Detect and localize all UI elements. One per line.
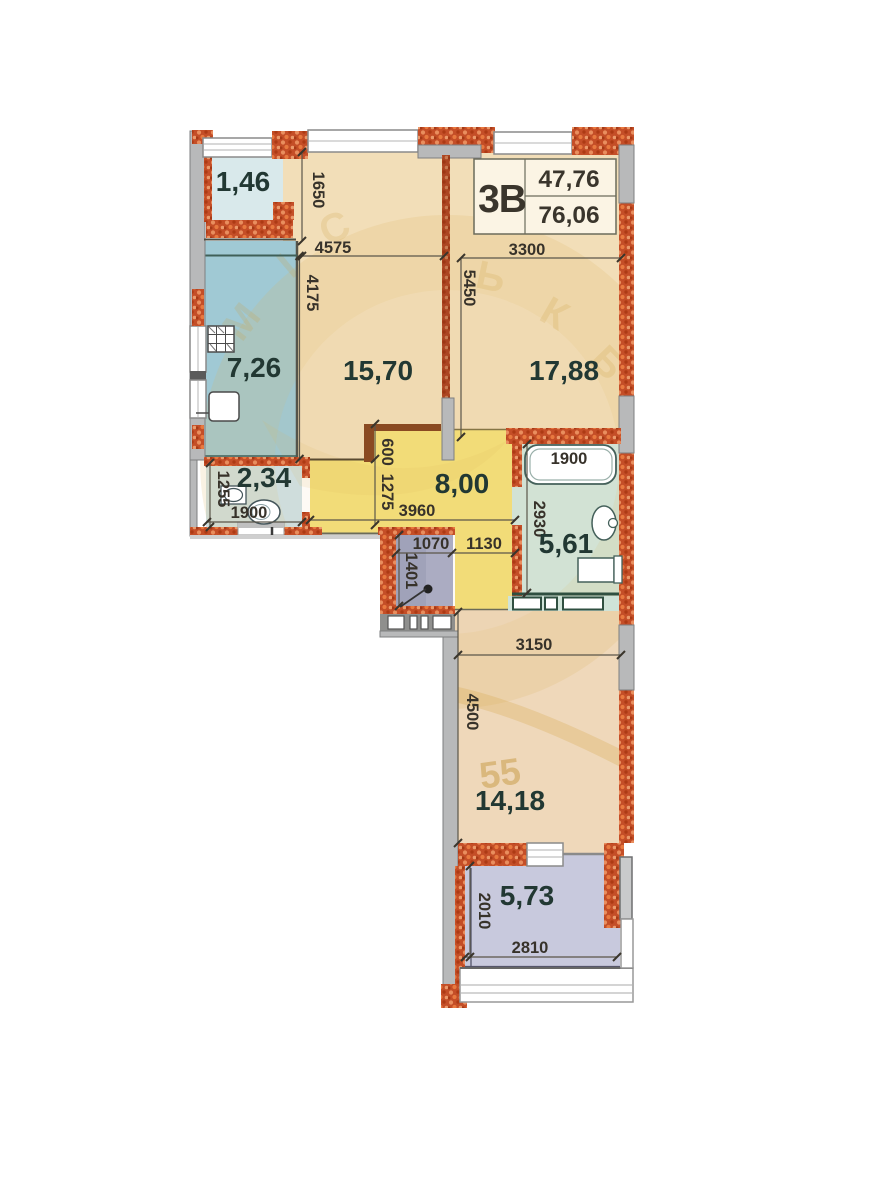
svg-text:3300: 3300 [509,241,546,259]
svg-text:2010: 2010 [475,893,493,930]
svg-text:1255: 1255 [214,471,232,508]
svg-text:7,26: 7,26 [227,352,282,383]
svg-text:3В: 3В [478,178,526,221]
svg-text:2,34: 2,34 [237,462,292,493]
svg-text:2810: 2810 [512,939,549,957]
svg-text:5450: 5450 [460,270,478,307]
svg-text:4500: 4500 [463,694,481,731]
svg-text:1650: 1650 [309,172,327,209]
svg-text:15,70: 15,70 [343,355,413,386]
svg-text:8,00: 8,00 [435,468,490,499]
svg-text:1900: 1900 [551,450,588,468]
svg-text:3150: 3150 [516,636,553,654]
svg-text:4175: 4175 [303,275,321,312]
svg-text:1070: 1070 [413,535,450,553]
svg-text:1,46: 1,46 [216,166,271,197]
svg-text:17,88: 17,88 [529,355,599,386]
svg-text:14,18: 14,18 [475,785,545,816]
svg-text:47,76: 47,76 [538,166,599,193]
svg-text:3960: 3960 [399,502,436,520]
svg-text:1275: 1275 [378,474,396,511]
svg-text:5,61: 5,61 [539,528,594,559]
svg-text:1130: 1130 [466,535,502,553]
svg-text:1401: 1401 [402,553,420,590]
svg-text:4575: 4575 [315,239,352,257]
svg-text:76,06: 76,06 [538,202,599,229]
svg-text:600: 600 [378,438,396,466]
svg-text:5,73: 5,73 [500,880,555,911]
svg-text:1900: 1900 [231,504,268,522]
